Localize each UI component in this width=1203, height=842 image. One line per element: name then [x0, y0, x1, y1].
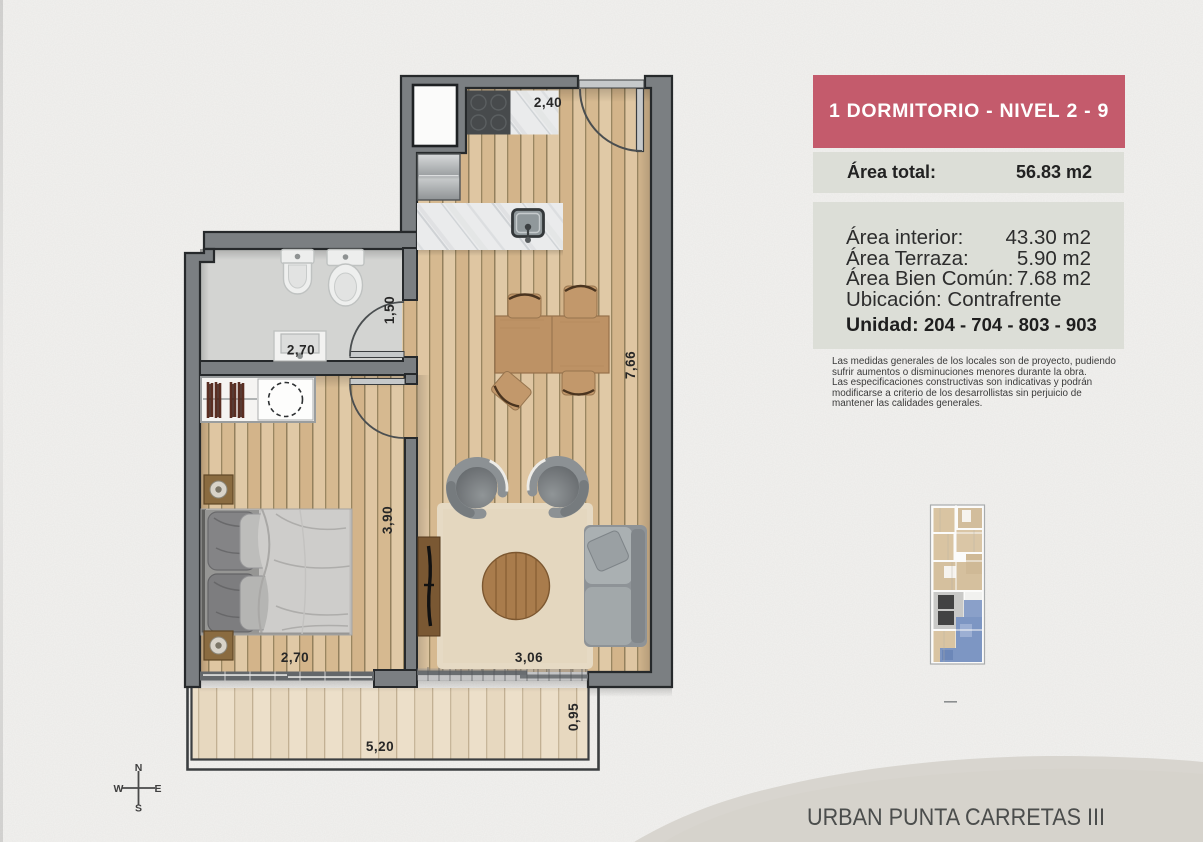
- svg-text:3,06: 3,06: [515, 650, 543, 665]
- svg-text:W: W: [114, 783, 124, 795]
- svg-text:2,70: 2,70: [287, 343, 315, 358]
- svg-text:0,95: 0,95: [566, 703, 581, 731]
- svg-text:N: N: [135, 762, 143, 774]
- svg-text:5,20: 5,20: [366, 739, 394, 754]
- svg-text:S: S: [135, 803, 142, 815]
- svg-text:3,90: 3,90: [380, 506, 395, 534]
- svg-text:1,50: 1,50: [382, 296, 397, 324]
- svg-text:7,66: 7,66: [623, 351, 638, 379]
- svg-text:2,40: 2,40: [534, 95, 562, 110]
- svg-text:E: E: [154, 783, 161, 795]
- svg-text:2,70: 2,70: [281, 650, 309, 665]
